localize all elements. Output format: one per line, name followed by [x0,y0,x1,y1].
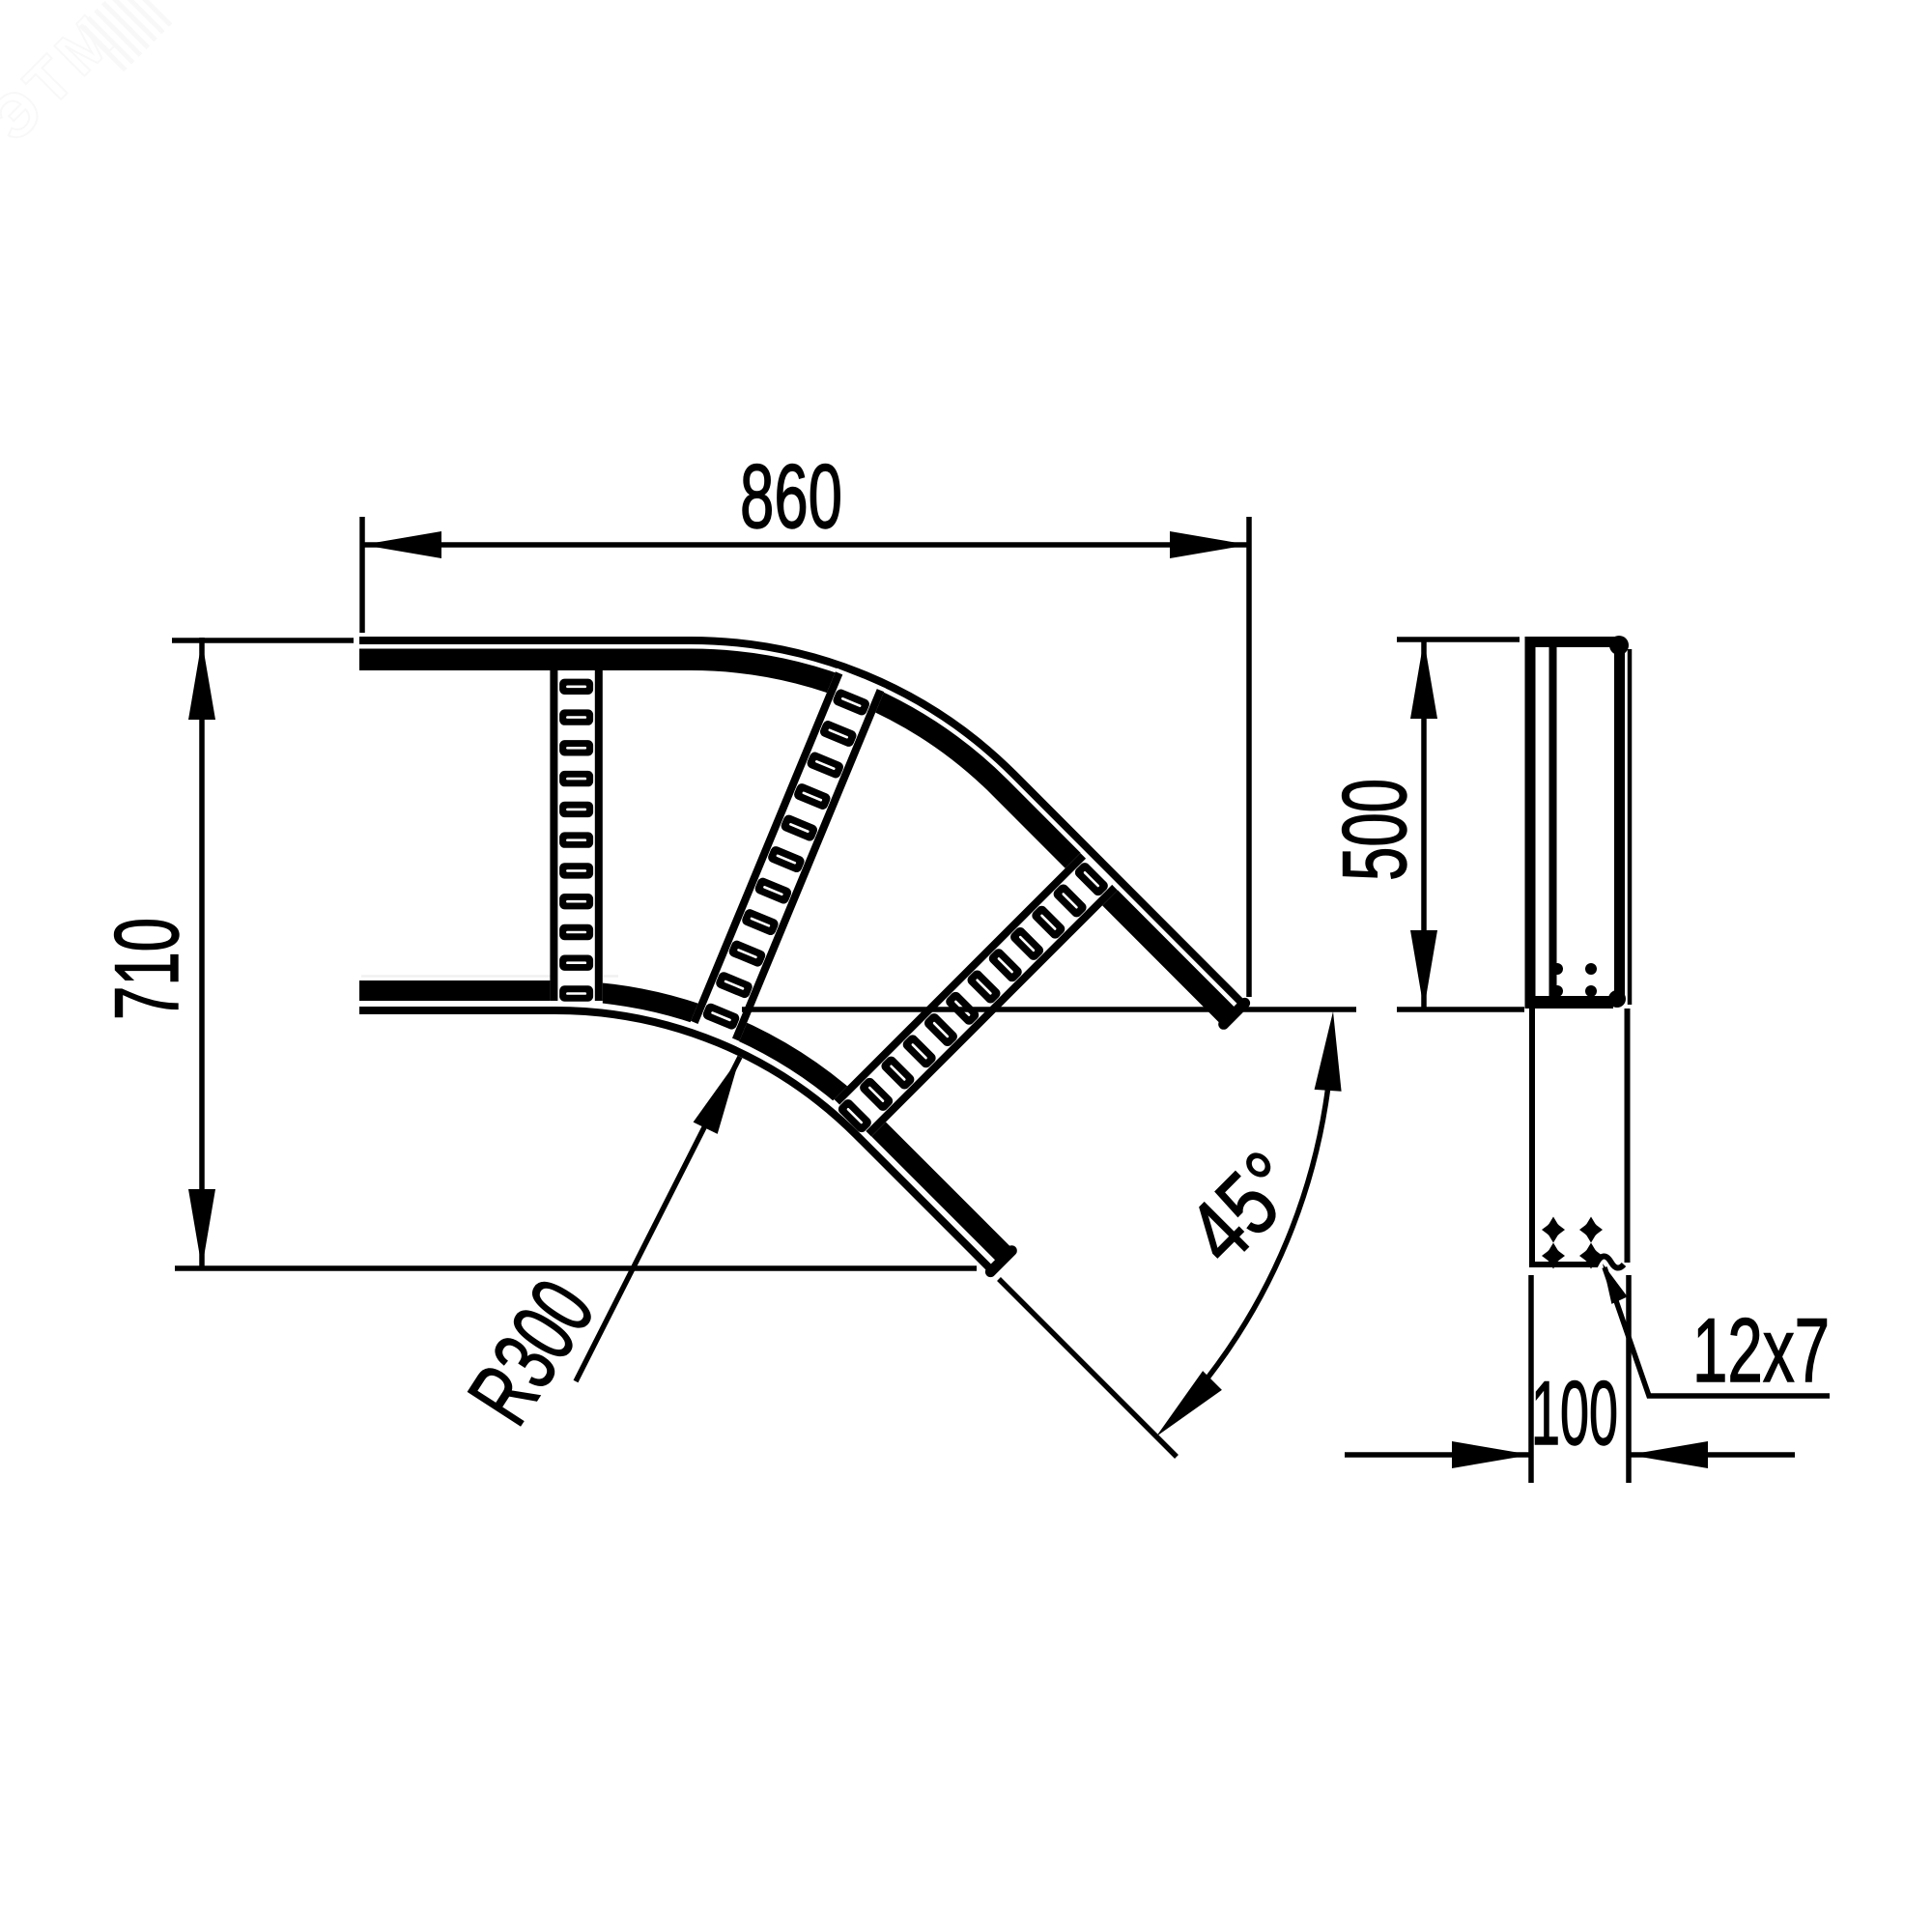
svg-text:710: 710 [96,918,197,1020]
svg-text:500: 500 [1323,779,1425,881]
svg-text:12x7: 12x7 [1692,1299,1830,1401]
svg-text:860: 860 [740,445,842,547]
svg-text:100: 100 [1531,1362,1618,1463]
